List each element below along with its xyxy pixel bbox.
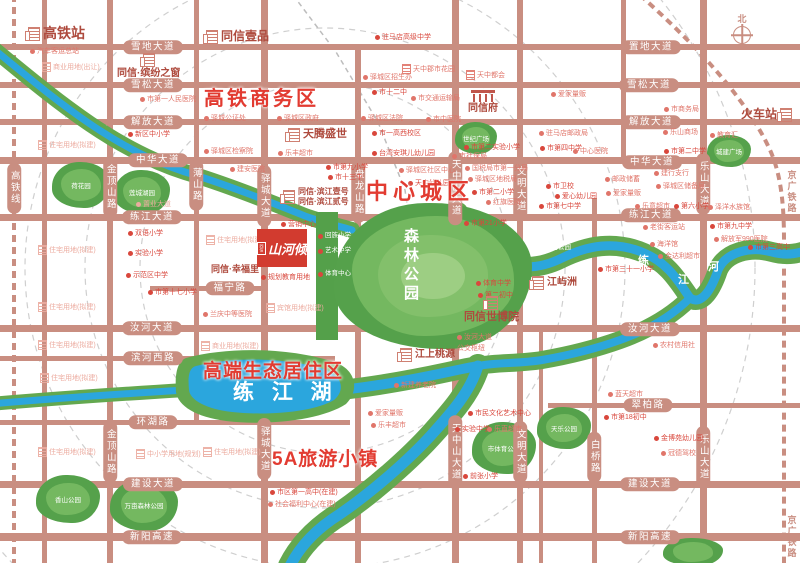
poi-label: 台湾安琪儿幼儿园	[379, 150, 435, 157]
poi-市社保局: 市社保局	[452, 153, 487, 160]
poi-国税局市第一分局: 国税局市第一分局	[465, 165, 528, 172]
poi-dot-icon	[539, 204, 544, 209]
poi-label: 天中都会	[477, 72, 505, 79]
poi-label: 第六小学	[681, 203, 709, 210]
poi-乐意超市: 乐意超市	[635, 203, 670, 210]
building-plot-icon	[206, 235, 215, 245]
poi-dot-icon	[457, 335, 462, 340]
landmark-label: 同信·滨江壹号同信·滨江贰号	[298, 187, 349, 207]
poi-label: 市第二实验小学	[471, 144, 520, 151]
poi-dot-icon	[663, 130, 668, 135]
park-城建广场: 城建广场	[707, 135, 751, 167]
poi-dot-icon	[487, 427, 492, 432]
poi-中心医院: 中心医院	[573, 148, 608, 155]
compass-icon	[733, 26, 751, 44]
poi-dot-icon	[372, 131, 377, 136]
poi-dot-icon	[551, 92, 556, 97]
poi-label: 体育中学	[483, 280, 511, 287]
poi-dot-icon	[674, 204, 679, 209]
poi-label: 汽车客运总站	[37, 48, 79, 55]
poi-dot-icon	[605, 177, 610, 182]
poi-驿城区检察院: 驿城区检察院	[204, 148, 253, 155]
poi-爱家量贩: 爱家量贩	[551, 91, 586, 98]
poi-label: 市社保局	[459, 153, 487, 160]
poi-label: 市第七中学	[546, 203, 581, 210]
building-icon	[28, 27, 40, 41]
poi-实验小学: 实验小学	[128, 250, 163, 257]
district-title: 高铁商务区	[204, 89, 319, 109]
poi-市第21小学: 市第21小学	[464, 220, 507, 227]
poi-dot-icon	[268, 502, 273, 507]
poi-乐丰超市: 乐丰超市	[371, 422, 406, 429]
poi-海洋馆: 海洋馆	[650, 241, 678, 248]
road-label: 新阳高速	[620, 530, 680, 544]
poi-label: 驻马店高级中学	[382, 34, 431, 41]
poi-label: 红旗医院	[493, 199, 521, 206]
poi-label: 海洋馆	[657, 241, 678, 248]
poi-驿城区政府: 驿城区政府	[277, 115, 319, 122]
landmark-江上桃源: 江上桃源	[400, 348, 455, 362]
poi-label: 市第二小学	[479, 189, 514, 196]
landmark-label: 同信壹品	[221, 29, 269, 44]
poi-dot-icon	[278, 151, 283, 156]
poi-市第十七小学: 市第十七小学	[148, 289, 197, 296]
poi-驻马店邮政局: 驻马店邮政局	[539, 130, 588, 137]
poi-驿城区储备局: 驿城区储备局	[656, 183, 705, 190]
poi-市第二实验小学: 市第二实验小学	[464, 144, 520, 151]
landmark-label: 同信府	[468, 103, 498, 116]
poi-住宅用地(拟建): 住宅用地(拟建)	[38, 245, 96, 255]
poi-驿城区招生办: 驿城区招生办	[363, 74, 412, 81]
building-plot-icon	[402, 64, 411, 74]
poi-商业用地(出让): 商业用地(出让)	[42, 62, 100, 72]
poi-第六小学: 第六小学	[674, 203, 709, 210]
poi-市第一人民医院: 市第一人民医院	[140, 96, 196, 103]
poi-市第九中学: 市第九中学	[710, 223, 752, 230]
poi-住宅用地(拟建): 住宅用地(拟建)	[38, 340, 96, 350]
poi-实验中学: 实验中学	[455, 426, 490, 433]
project-logo-block: 同信 山河倾	[257, 229, 307, 267]
poi-label: 乐丰超市	[378, 422, 406, 429]
poi-dot-icon	[539, 131, 544, 136]
poi-dot-icon	[455, 427, 460, 432]
building-plot-icon	[38, 447, 47, 457]
poi-dot-icon	[140, 97, 145, 102]
building-plot-icon	[40, 373, 49, 383]
poi-驿城公证处: 驿城公证处	[204, 115, 246, 122]
poi-驿城区社区中心: 驿城区社区中心	[399, 167, 455, 174]
poi-label: 市第三高中	[755, 244, 790, 251]
poi-label: 驿城区社区中心	[406, 167, 455, 174]
poi-dot-icon	[204, 149, 209, 154]
poi-天中郡市花园: 天中郡市花园	[402, 64, 455, 74]
green-label: 艺术中学	[325, 248, 351, 255]
landmark-label: 江上桃源	[415, 349, 455, 362]
poi-dot-icon	[326, 165, 331, 170]
park-label: 天乐公园	[537, 407, 591, 449]
poi-市十三中: 市十三中	[328, 174, 363, 181]
poi-置业大道: 置业大道	[136, 201, 171, 208]
poi-dot-icon	[465, 166, 470, 171]
poi-label: 天中郡市花园	[413, 66, 455, 73]
building-plot-icon	[38, 302, 47, 312]
poi-市民文化艺术中心: 市民文化艺术中心	[468, 410, 531, 417]
landmark-天腾盛世: 天腾盛世	[288, 128, 347, 142]
poi-label: 兰庆中等医院	[210, 311, 252, 318]
poi-label: 教育汇	[717, 132, 738, 139]
poi-label: 老街客运站	[650, 224, 685, 231]
poi-dot-icon	[372, 151, 377, 156]
poi-泽洋水族馆: 泽洋水族馆	[708, 204, 750, 211]
poi-金达利超市: 金达利超市	[658, 253, 700, 260]
poi-label: 驿城公证处	[211, 115, 246, 122]
poi-dot-icon	[604, 415, 609, 420]
poi-dot-icon	[363, 75, 368, 80]
park-香山公园: 香山公园	[36, 475, 100, 523]
building-plot-icon	[38, 245, 47, 255]
district-title: 5A旅游小镇	[272, 450, 378, 469]
poi-label: 住宅用地(拟建)	[214, 449, 261, 456]
poi-驻马店高级中学: 驻马店高级中学	[375, 34, 431, 41]
landmark-label: 同信·幸福里	[211, 264, 259, 275]
poi-dot-icon	[654, 436, 659, 441]
poi-label: 乐丰超市	[285, 150, 313, 157]
poi-label: 实验小学	[135, 250, 163, 257]
poi-label: 新区中小学	[135, 131, 170, 138]
poi-dot-icon	[126, 273, 131, 278]
poi-label: 爱家量贩	[375, 410, 403, 417]
poi-label: 乐山商场	[670, 129, 698, 136]
poi-label: 住宅用地(拟建)	[49, 304, 96, 311]
landmark-江屿洲: 江屿洲	[532, 276, 577, 290]
green-label-回族小学: 回族小学	[318, 233, 351, 240]
poi-label: 市第九小学	[333, 164, 368, 171]
poi-dot-icon	[608, 392, 613, 397]
poi-label: 乐意超市	[642, 203, 670, 210]
park-荷花园: 荷花园	[52, 162, 110, 208]
poi-dot-icon	[710, 133, 715, 138]
poi-dot-icon	[463, 474, 468, 479]
poi-label: 解放军990医院	[721, 236, 768, 243]
poi-汽车客运总站: 汽车客运总站	[30, 48, 79, 55]
poi-dot-icon	[650, 242, 655, 247]
poi-dot-icon	[555, 194, 560, 199]
poi-label: 国税局市第一分局	[472, 165, 528, 172]
poi-dot-icon	[375, 35, 380, 40]
road-label: 中华大道	[128, 153, 188, 167]
poi-dot-icon	[318, 272, 323, 277]
poi-营销中心: 营销中心	[281, 221, 316, 228]
poi-dot-icon	[128, 132, 133, 137]
poi-label: 住宅用地(拟建)	[49, 449, 96, 456]
poi-dot-icon	[468, 411, 473, 416]
poi-dot-icon	[368, 411, 373, 416]
road-label: 雪地大道	[123, 40, 183, 54]
poi-dot-icon	[653, 343, 658, 348]
poi-市商务局: 市商务局	[664, 106, 699, 113]
building-plot-icon	[38, 140, 47, 150]
green-label: 体育中心	[325, 271, 351, 278]
poi-dot-icon	[148, 290, 153, 295]
poi-label: 双语小学	[135, 230, 163, 237]
poi-label: 新建养老院	[401, 382, 436, 389]
poi-label: 市卫校	[553, 183, 574, 190]
poi-dot-icon	[411, 96, 416, 101]
poi-dot-icon	[128, 251, 133, 256]
poi-住宅用地(拟建): 住宅用地(拟建)	[38, 140, 96, 150]
poi-教育汇: 教育汇	[710, 132, 738, 139]
poi-label: 市十三中	[335, 174, 363, 181]
poi-商业用地(拟建): 商业用地(拟建)	[201, 341, 259, 351]
building-plot-icon	[466, 70, 475, 80]
poi-dot-icon	[270, 490, 275, 495]
poi-label: 住宅用地(拟建)	[49, 142, 96, 149]
poi-dot-icon	[399, 168, 404, 173]
poi-市第二中学: 市第二中学	[664, 148, 706, 155]
road-label: 白桥路	[587, 432, 601, 483]
green-label: 回族小学	[325, 233, 351, 240]
poi-label: 商业用地(出让)	[53, 64, 100, 71]
poi-dot-icon	[318, 234, 323, 239]
green-label-滨河公园: 滨河公园	[545, 245, 571, 252]
landmark-同信世博院: 同信世博院	[464, 296, 519, 325]
landmark-高铁站: 高铁站	[28, 25, 85, 43]
poi-label: 泽洋水族馆	[715, 204, 750, 211]
park-shape-inner	[673, 542, 714, 561]
road-label: 置地大道	[621, 40, 681, 54]
poi-label: 市第九中学	[717, 223, 752, 230]
poi-dot-icon	[372, 90, 377, 95]
poi-乐直超市: 乐直超市	[487, 426, 522, 433]
road-label: 驿城大道	[257, 165, 271, 227]
poi-dot-icon	[656, 184, 661, 189]
poi-dot-icon	[30, 49, 35, 54]
road-label: 金顶山路	[103, 421, 117, 483]
poi-label: 市区第一高中(在建)	[277, 489, 338, 496]
landmark-同信府: 同信府	[468, 90, 498, 116]
road-label: 汝河大道	[620, 322, 680, 336]
poi-label: 市交通运输局	[418, 95, 460, 102]
poi-dot-icon	[261, 275, 266, 280]
park-label: 香山公园	[36, 475, 100, 523]
road-label: 练江大道	[621, 208, 681, 222]
poi-label: 金达利超市	[665, 253, 700, 260]
poi-label: 市第21小学	[471, 220, 507, 227]
building-icon	[780, 108, 792, 122]
building-plot-icon	[203, 447, 212, 457]
poi-dot-icon	[204, 116, 209, 121]
poi-label: 前张小学	[470, 473, 498, 480]
poi-dot-icon	[573, 149, 578, 154]
poi-label: 市第18初中	[611, 414, 647, 421]
poi-建安医院: 建安医院	[230, 166, 265, 173]
road-label: 翠柏路	[623, 398, 672, 412]
poi-dot-icon	[658, 254, 663, 259]
poi-label: 爱家量贩	[558, 91, 586, 98]
poi-中小学用地(规划): 中小学用地(规划)	[136, 449, 201, 459]
poi-dot-icon	[643, 225, 648, 230]
landmark-label: 同信·缤纷之窗	[117, 68, 180, 81]
road-label: 薄山路	[189, 160, 203, 211]
poi-label: 住宅用地(拟建)	[49, 247, 96, 254]
gate-icon	[471, 90, 495, 102]
poi-label: 市第十七小学	[155, 289, 197, 296]
poi-市第九小学: 市第九小学	[326, 164, 368, 171]
poi-天中都会: 天中都会	[466, 70, 505, 80]
poi-公交枢纽: 公交枢纽	[457, 345, 485, 352]
poi-dot-icon	[748, 245, 753, 250]
poi-dot-icon	[452, 154, 457, 159]
poi-蓝天超市: 蓝天超市	[608, 391, 643, 398]
poi-老街客运站: 老街客运站	[643, 224, 685, 231]
landmark-label: 高铁站	[43, 25, 85, 43]
poi-住宅用地(拟建): 住宅用地(拟建)	[38, 447, 96, 457]
poi-label: 蓝天超市	[615, 391, 643, 398]
building-icon	[288, 128, 300, 142]
poi-市第三十一小学: 市第三十一小学	[598, 266, 654, 273]
green-label: 滨河公园	[545, 245, 571, 252]
poi-dot-icon	[664, 107, 669, 112]
poi-冠德驾校: 冠德驾校	[661, 450, 696, 457]
poi-label: 社会福利中心(在建)	[275, 501, 336, 508]
poi-label: 驿城区地税局	[475, 176, 517, 183]
poi-示范区中学: 示范区中学	[126, 272, 168, 279]
poi-红旗医院: 红旗医院	[486, 199, 521, 206]
district-title: 森林公园	[403, 228, 418, 304]
poi-住宅用地(拟建): 住宅用地(拟建)	[206, 235, 264, 245]
poi-dot-icon	[318, 249, 323, 254]
logo-seal: 同信	[257, 242, 266, 255]
poi-市第三高中: 市第三高中	[748, 244, 790, 251]
compass: 北	[730, 12, 754, 44]
poi-dot-icon	[486, 200, 491, 205]
poi-乐丰超市: 乐丰超市	[278, 150, 313, 157]
poi-label: 汝河大道	[464, 334, 492, 341]
railway-label: 京广铁路	[786, 170, 799, 214]
poi-dot-icon	[128, 231, 133, 236]
poi-dot-icon	[426, 117, 431, 122]
poi-dot-icon	[606, 191, 611, 196]
poi-dot-icon	[710, 224, 715, 229]
poi-市十二中: 市十二中	[372, 89, 407, 96]
poi-label: 爱心幼儿园	[562, 193, 597, 200]
building-icon	[206, 30, 218, 44]
river-name-char: 河	[708, 258, 719, 274]
poi-label: 市一高西校区	[379, 130, 421, 137]
landmark-label: 江屿洲	[547, 277, 577, 290]
building-plot-icon	[201, 341, 210, 351]
poi-宾馆用地(拟建): 宾馆用地(拟建)	[266, 303, 324, 313]
building-plot-icon	[136, 449, 145, 459]
poi-兰庆中等医院: 兰庆中等医院	[203, 311, 252, 318]
poi-台湾安琪儿幼儿园: 台湾安琪儿幼儿园	[372, 150, 435, 157]
poi-label: 中小学用地(规划)	[147, 451, 201, 458]
road-label: 雪松大道	[619, 78, 679, 92]
poi-新建养老院: 新建养老院	[394, 382, 436, 389]
poi-住宅用地(拟建): 住宅用地(拟建)	[40, 373, 98, 383]
building-icon	[143, 53, 155, 67]
poi-dot-icon	[277, 116, 282, 121]
poi-label: 营销中心	[288, 221, 316, 228]
landmark-同信壹品: 同信壹品	[206, 29, 269, 44]
poi-dot-icon	[230, 167, 235, 172]
road-label: 新阳高速	[122, 530, 182, 544]
road-label: 汝河大道	[122, 321, 182, 335]
poi-dot-icon	[464, 221, 469, 226]
poi-label: 爱家量贩	[613, 190, 641, 197]
poi-爱家量贩: 爱家量贩	[606, 190, 641, 197]
poi-驿城区地税局: 驿城区地税局	[468, 176, 517, 183]
building-icon	[486, 296, 498, 310]
poi-label: 驿城区储备局	[663, 183, 705, 190]
poi-label: 住宅用地(拟建)	[49, 342, 96, 349]
green-label-体育中心: 体育中心	[318, 271, 351, 278]
building-plot-icon	[42, 62, 51, 72]
road-label: 解放大道	[621, 115, 681, 129]
poi-新区中小学: 新区中小学	[128, 131, 170, 138]
poi-驿城区法院: 驿城区法院	[361, 115, 403, 122]
green-label-艺术中学: 艺术中学	[318, 248, 351, 255]
poi-爱家量贩: 爱家量贩	[368, 410, 403, 417]
poi-label: 金博苑幼儿园	[661, 435, 703, 442]
poi-社会福利中心(在建): 社会福利中心(在建)	[268, 501, 336, 508]
poi-label: 建行支行	[661, 170, 689, 177]
railway-label: 京广铁路	[786, 515, 799, 559]
poi-dot-icon	[136, 202, 141, 207]
poi-住宅用地(拟建): 住宅用地(拟建)	[38, 302, 96, 312]
river-name-char: 江	[678, 271, 689, 287]
poi-label: 置业大道	[143, 201, 171, 208]
poi-dot-icon	[540, 146, 545, 151]
poi-爱心幼儿园: 爱心幼儿园	[555, 193, 597, 200]
poi-label: 驻马店邮政局	[546, 130, 588, 137]
road-label: 滨河西路	[123, 351, 183, 365]
district-title: 中心城区	[366, 181, 474, 203]
poi-label: 乐直超市	[494, 426, 522, 433]
building-icon	[532, 276, 544, 290]
poi-dot-icon	[708, 205, 713, 210]
park-label: 荷花园	[52, 162, 110, 208]
poi-dot-icon	[546, 184, 551, 189]
landmark-同信·幸福里: 同信·幸福里	[211, 264, 259, 275]
landmark-label: 天腾盛世	[303, 128, 347, 142]
poi-规划教育用地: 规划教育用地	[261, 274, 310, 281]
poi-label: 中心医院	[580, 148, 608, 155]
road-label: 解放大道	[123, 115, 183, 129]
landmark-火车站: 火车站	[741, 107, 792, 122]
landmark-label: 同信世博院	[464, 311, 519, 325]
poi-dot-icon	[476, 281, 481, 286]
building-plot-icon	[266, 303, 275, 313]
building-icon	[400, 348, 412, 362]
landmark-同信·缤纷之窗: 同信·缤纷之窗	[117, 53, 180, 81]
road-label: 福宁路	[205, 281, 254, 295]
poi-dot-icon	[464, 145, 469, 150]
poi-dot-icon	[664, 149, 669, 154]
poi-市第二小学: 市第二小学	[472, 189, 514, 196]
poi-label: 住宅用地(拟建)	[51, 375, 98, 382]
poi-建行支行: 建行支行	[654, 170, 689, 177]
poi-邮政储蓄: 邮政储蓄	[605, 176, 640, 183]
road-label: 建设大道	[620, 477, 680, 491]
poi-label: 实验中学	[462, 426, 490, 433]
poi-dot-icon	[281, 222, 286, 227]
poi-dot-icon	[328, 175, 333, 180]
poi-前张小学: 前张小学	[463, 473, 498, 480]
road-label: 中华大道	[622, 155, 682, 169]
poi-label: 公交枢纽	[457, 345, 485, 352]
poi-乐山商场: 乐山商场	[663, 129, 698, 136]
